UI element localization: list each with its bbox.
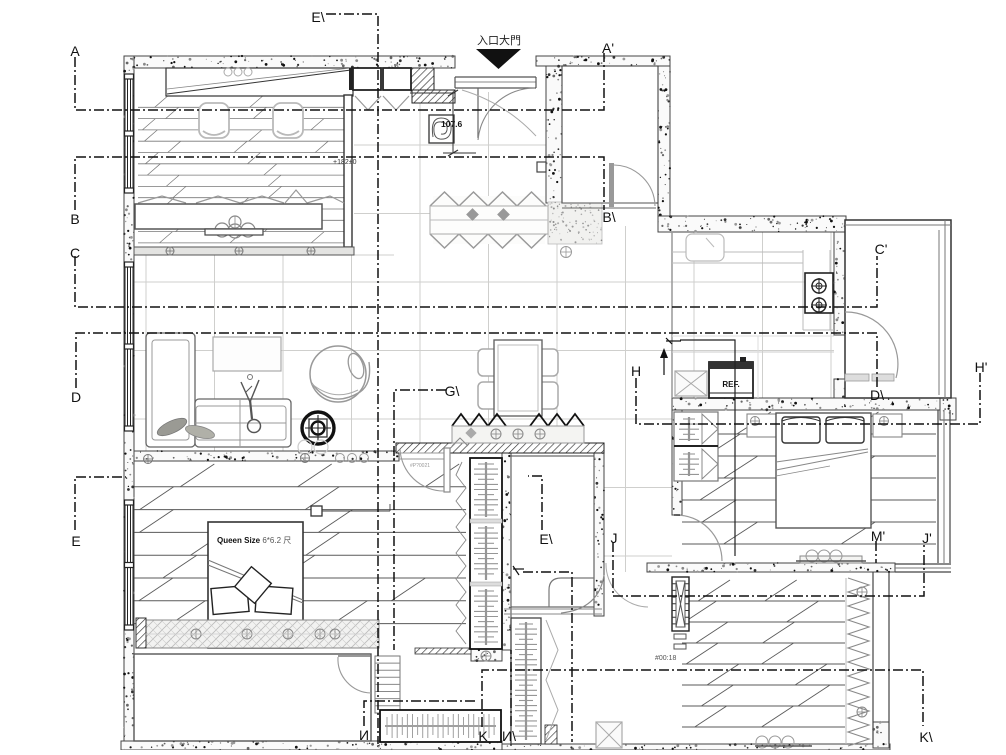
svg-text:#00:18: #00:18	[655, 655, 677, 662]
svg-text:D\: D\	[870, 387, 884, 403]
svg-text:H: H	[631, 363, 641, 379]
svg-text:REF.: REF.	[722, 380, 739, 389]
svg-text:107.6: 107.6	[441, 119, 463, 129]
svg-text:D: D	[71, 389, 81, 405]
svg-text:E\: E\	[539, 531, 552, 547]
svg-text:K\: K\	[919, 729, 932, 745]
svg-text:A: A	[70, 43, 80, 59]
svg-text:E: E	[71, 533, 80, 549]
svg-text:J: J	[611, 530, 618, 546]
svg-text:J': J'	[922, 530, 932, 546]
svg-text:B: B	[70, 211, 79, 227]
svg-text:B\: B\	[602, 209, 615, 225]
svg-text:+182±0: +182±0	[333, 159, 357, 166]
svg-text:G\: G\	[445, 383, 460, 399]
svg-text:И: И	[359, 727, 369, 743]
svg-text:K: K	[478, 728, 488, 744]
svg-text:A': A'	[602, 40, 614, 56]
svg-text:Queen Size 6*6.2 尺: Queen Size 6*6.2 尺	[217, 536, 291, 545]
svg-text:C': C'	[875, 241, 888, 257]
svg-text:И\: И\	[502, 728, 516, 744]
svg-text:M': M'	[871, 528, 885, 544]
svg-text:入口大門: 入口大門	[477, 33, 521, 47]
svg-text:H': H'	[975, 359, 988, 375]
svg-text:C: C	[70, 245, 80, 261]
svg-text:E\: E\	[311, 9, 324, 25]
svg-text:#P?0021: #P?0021	[410, 463, 430, 469]
